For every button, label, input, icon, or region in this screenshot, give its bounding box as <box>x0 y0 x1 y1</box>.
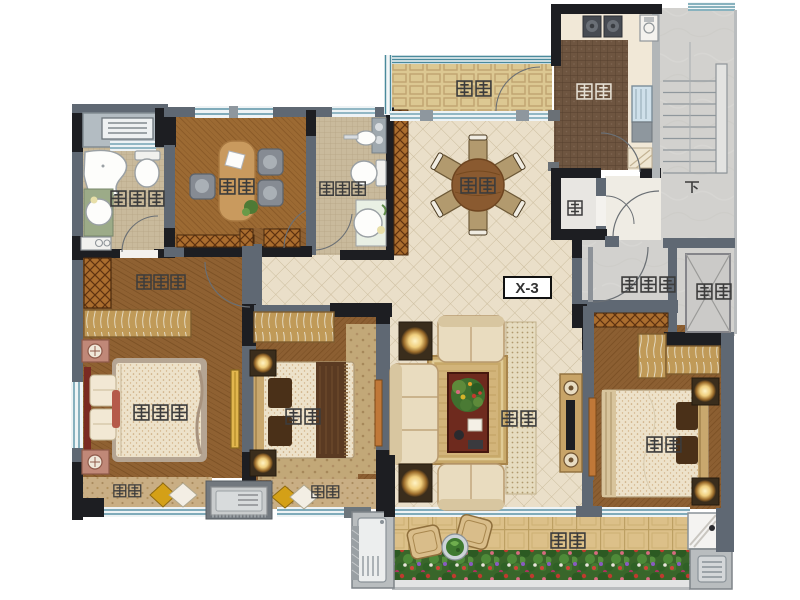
svg-text:X-3: X-3 <box>515 280 538 297</box>
